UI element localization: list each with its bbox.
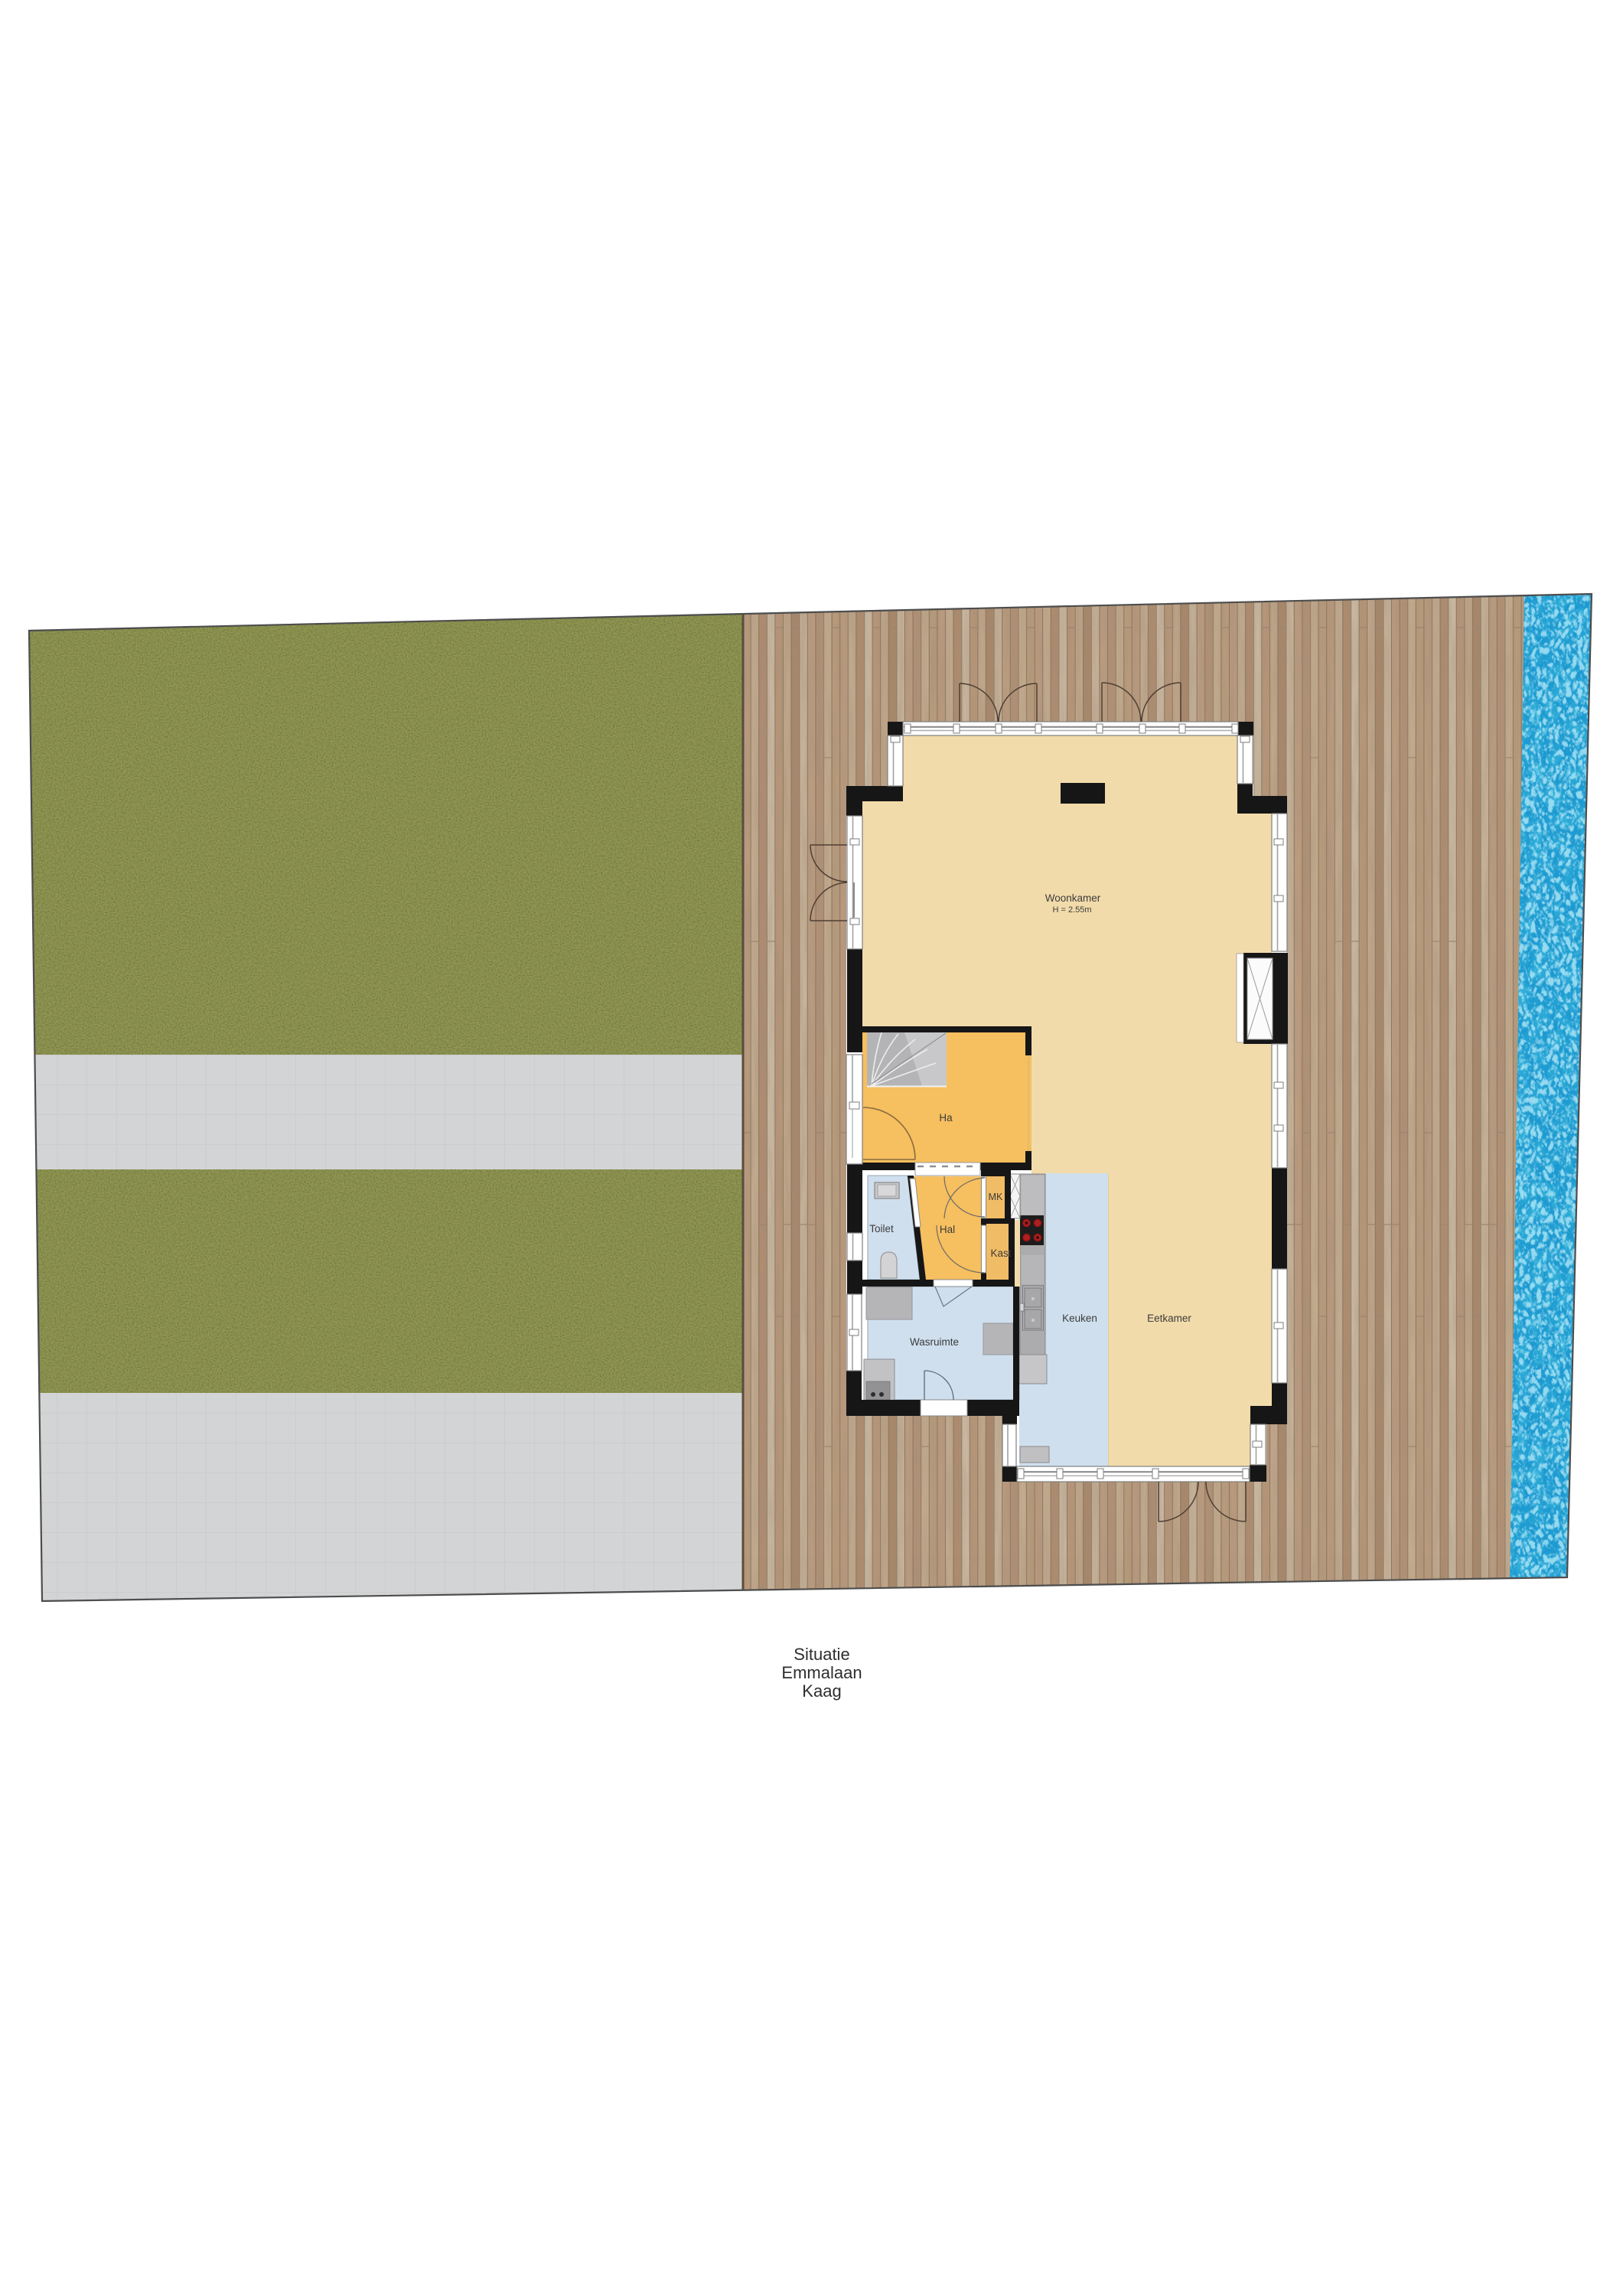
svg-text:Hal: Hal (940, 1224, 955, 1235)
svg-text:Kast: Kast (990, 1247, 1011, 1259)
svg-text:Wasruimte: Wasruimte (910, 1336, 959, 1348)
svg-text:MK: MK (989, 1192, 1003, 1202)
svg-text:H = 2.55m: H = 2.55m (1052, 905, 1091, 915)
svg-text:Woonkamer: Woonkamer (1045, 892, 1101, 904)
svg-text:Kaag: Kaag (802, 1681, 841, 1701)
svg-text:Ha: Ha (939, 1112, 953, 1124)
svg-text:Eetkamer: Eetkamer (1147, 1313, 1191, 1324)
svg-text:Emmalaan: Emmalaan (781, 1663, 862, 1682)
svg-text:Keuken: Keuken (1062, 1313, 1097, 1324)
svg-text:Toilet: Toilet (869, 1223, 894, 1234)
svg-text:Situatie: Situatie (794, 1645, 849, 1664)
